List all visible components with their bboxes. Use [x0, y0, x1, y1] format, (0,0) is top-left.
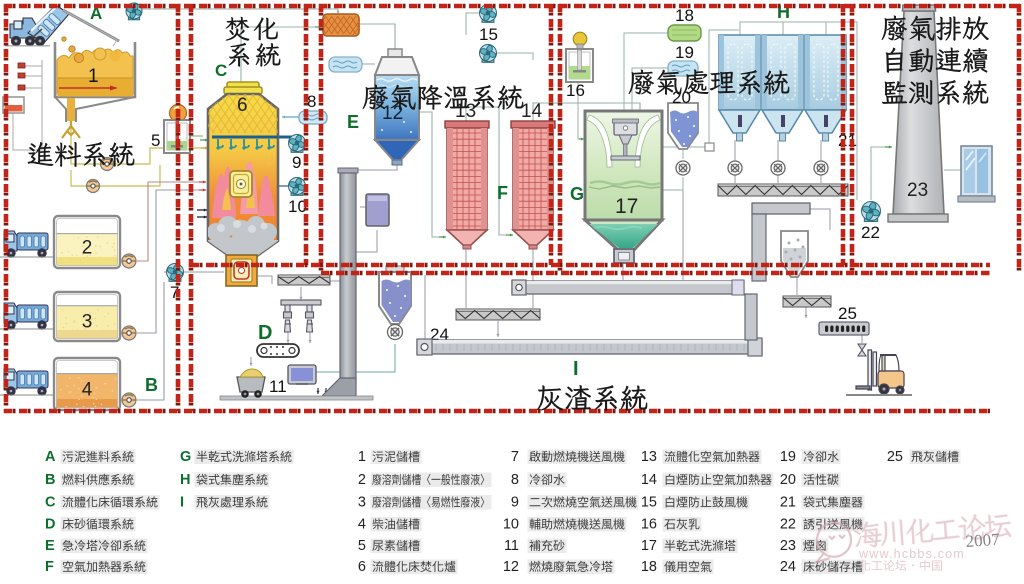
svg-text:D: D — [258, 322, 272, 344]
svg-text:1: 1 — [358, 449, 366, 465]
svg-text:25: 25 — [838, 304, 857, 323]
svg-text:7: 7 — [511, 449, 519, 465]
svg-text:14: 14 — [641, 472, 657, 488]
svg-text:17: 17 — [615, 195, 638, 218]
svg-text:9: 9 — [511, 495, 519, 511]
svg-text:13: 13 — [641, 449, 657, 465]
svg-text:C: C — [215, 61, 227, 80]
svg-text:F: F — [497, 183, 508, 203]
svg-text:12: 12 — [503, 559, 519, 575]
svg-text:18: 18 — [641, 559, 657, 575]
svg-text:11: 11 — [269, 377, 287, 396]
svg-text:E: E — [347, 112, 359, 132]
svg-text:19: 19 — [780, 449, 796, 465]
svg-text:19: 19 — [675, 43, 694, 62]
svg-text:6: 6 — [237, 95, 248, 116]
svg-text:4: 4 — [358, 517, 366, 533]
svg-text:H: H — [180, 472, 190, 488]
svg-text:3: 3 — [82, 311, 93, 332]
svg-text:15: 15 — [479, 25, 498, 44]
svg-text:E: E — [45, 538, 55, 554]
svg-text:F: F — [45, 559, 54, 575]
svg-text:10: 10 — [503, 517, 519, 533]
svg-text:C: C — [45, 495, 56, 511]
svg-text:I: I — [573, 358, 579, 380]
svg-text:8: 8 — [307, 92, 316, 111]
svg-text:2: 2 — [82, 237, 93, 258]
svg-text:9: 9 — [292, 153, 301, 172]
svg-text:24: 24 — [780, 559, 796, 575]
svg-text:14: 14 — [521, 101, 543, 122]
svg-text:I: I — [180, 495, 184, 511]
svg-text:B: B — [145, 375, 158, 395]
svg-text:18: 18 — [675, 6, 694, 25]
svg-text:20: 20 — [780, 472, 796, 488]
svg-text:6: 6 — [358, 559, 366, 575]
svg-text:2: 2 — [358, 472, 366, 488]
svg-text:22: 22 — [861, 223, 880, 242]
svg-text:20: 20 — [672, 88, 691, 107]
svg-text:25: 25 — [887, 449, 903, 465]
svg-text:8: 8 — [511, 472, 519, 488]
svg-text:2007: 2007 — [965, 530, 1001, 551]
svg-text:4: 4 — [82, 379, 93, 400]
svg-text:B: B — [45, 472, 55, 488]
svg-text:G: G — [570, 184, 584, 204]
svg-text:21: 21 — [780, 495, 796, 511]
svg-text:D: D — [45, 517, 55, 533]
svg-text:5: 5 — [151, 131, 160, 150]
svg-text:G: G — [180, 449, 191, 465]
svg-text:3: 3 — [358, 495, 366, 511]
svg-text:23: 23 — [780, 538, 796, 554]
svg-text:11: 11 — [504, 538, 519, 554]
svg-text:www.hcbbs.com: www.hcbbs.com — [858, 547, 965, 561]
svg-text:22: 22 — [780, 517, 796, 533]
svg-text:16: 16 — [641, 517, 657, 533]
svg-text:A: A — [45, 449, 56, 465]
svg-text:5: 5 — [358, 538, 366, 554]
svg-text:16: 16 — [566, 81, 585, 100]
svg-text:17: 17 — [641, 538, 657, 554]
svg-text:1: 1 — [88, 66, 99, 87]
svg-text:23: 23 — [907, 180, 928, 201]
svg-text:15: 15 — [641, 495, 657, 511]
